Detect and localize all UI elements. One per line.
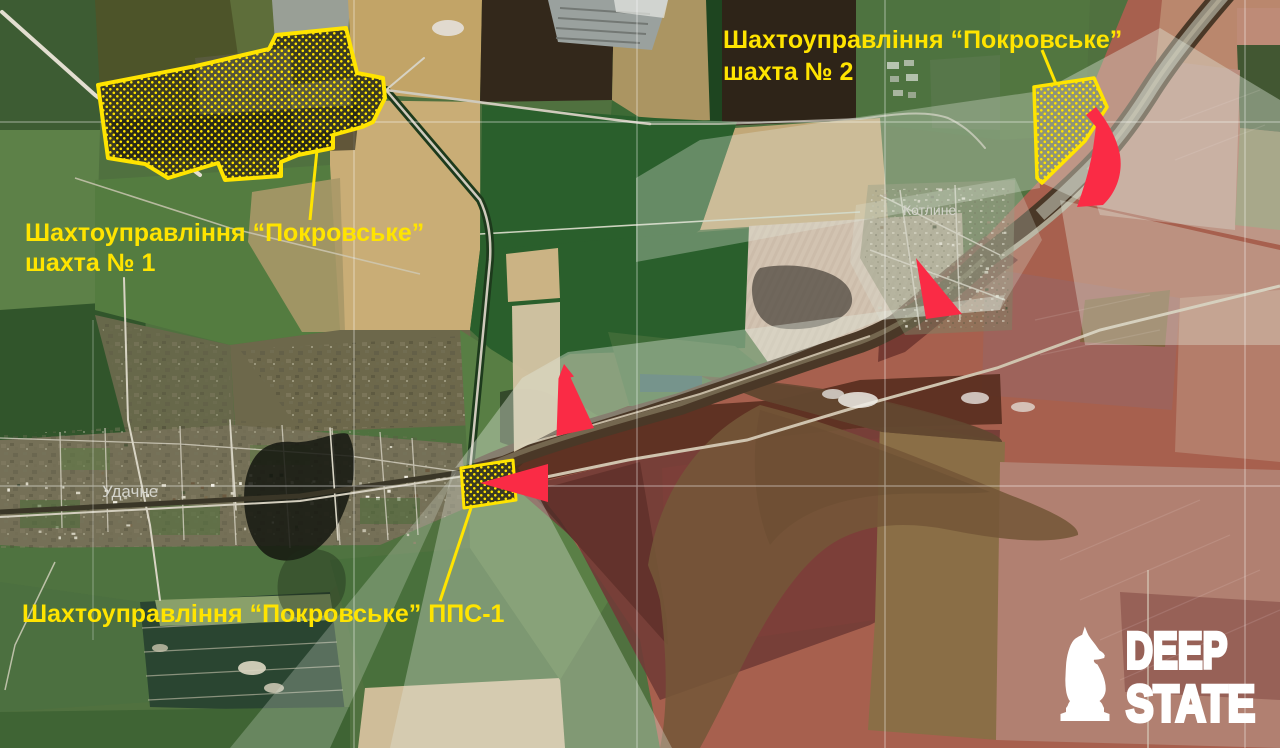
svg-text:Шахтоуправління “Покровське”: Шахтоуправління “Покровське” — [25, 219, 424, 247]
svg-text:Котлине: Котлине — [903, 202, 956, 218]
svg-text:шахта № 1: шахта № 1 — [25, 249, 156, 277]
svg-text:Шахтоуправління “Покровське” П: Шахтоуправління “Покровське” ППС-1 — [22, 600, 505, 628]
svg-text:STATE: STATE — [1126, 675, 1255, 732]
svg-text:Удачне: Удачне — [102, 482, 158, 501]
svg-text:шахта № 2: шахта № 2 — [723, 58, 853, 86]
svg-text:Шахтоуправління “Покровське”: Шахтоуправління “Покровське” — [723, 26, 1122, 54]
svg-text:DEEP: DEEP — [1126, 623, 1227, 679]
